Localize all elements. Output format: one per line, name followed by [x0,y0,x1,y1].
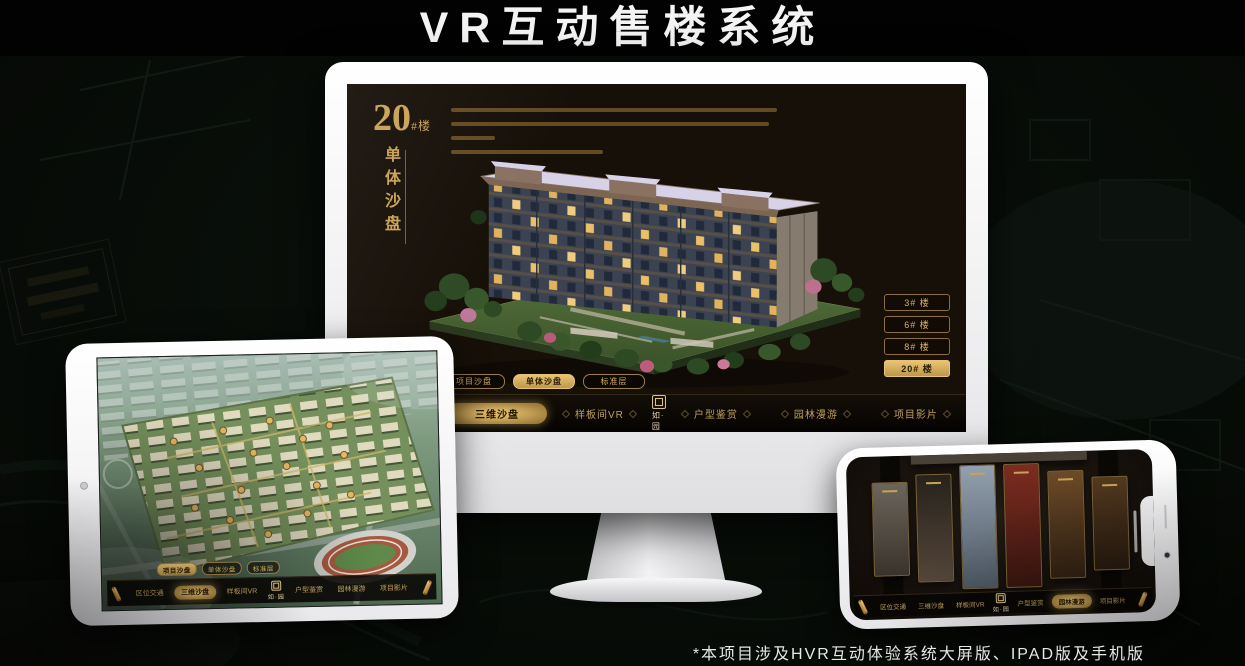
brand-logo[interactable]: 如·园 [992,592,1010,612]
page-title: VR互动售楼系统 [0,0,1245,56]
sub-tab[interactable]: 单体沙盘 [202,561,242,575]
monitor-stand-base [550,578,762,602]
gallery-panel[interactable] [872,482,911,577]
nav-item[interactable]: 户型鉴赏 [291,582,327,597]
vr-scene-gallery [871,460,1130,593]
brand-seal-icon [652,395,666,409]
nav-item[interactable]: 区位交通 [876,598,910,613]
building-number-suffix: #楼 [411,119,431,133]
scroll-ornament-icon[interactable] [107,584,125,602]
gallery-panel[interactable] [1091,476,1130,571]
phone-notch [1140,495,1155,565]
floor-selector: 3# 楼 6# 楼 8# 楼 20# 楼 [884,294,950,377]
nav-item[interactable]: 户型鉴赏 [1013,594,1047,609]
phone-speaker-icon [1164,505,1167,529]
nav-item[interactable]: 区位交通 [132,586,168,601]
nav-item[interactable]: 园林漫游 [333,581,369,596]
gallery-panel[interactable] [1047,470,1086,579]
nav-item[interactable]: 项目影片 [1096,592,1130,607]
sub-tab[interactable]: 标准层 [247,561,280,575]
nav-item[interactable]: 项目影片 [866,403,966,424]
sandbox-sub-tabs: 项目沙盘 单体沙盘 标准层 [443,374,645,389]
nav-item[interactable]: 样板间VR [222,584,261,599]
nav-item[interactable]: 园林漫游 [766,403,866,424]
home-indicator[interactable] [1133,510,1137,552]
compass-watermark-icon [103,459,134,490]
brand-seal-icon [996,593,1006,603]
gallery-panel[interactable] [959,464,998,589]
floor-button[interactable]: 8# 楼 [884,338,950,355]
floor-button[interactable]: 6# 楼 [884,316,950,333]
brand-logo[interactable]: 如·园 [267,580,284,600]
phone-device: 区位交通 三维沙盘 样板间VR 如·园 户型鉴赏 园林漫游 [836,439,1181,629]
nav-item[interactable]: 户型鉴赏 [666,403,766,424]
brand-logo[interactable]: 如·园 [652,395,666,432]
background-plaque [0,239,126,344]
tablet-camera-icon [80,482,88,490]
tablet-screen: 项目沙盘 单体沙盘 标准层 区位交通 [96,350,442,611]
phone-camera-icon [1164,552,1171,559]
nav-item[interactable]: 样板间VR [952,596,989,611]
floor-button[interactable]: 3# 楼 [884,294,950,311]
scroll-ornament-icon[interactable] [854,597,872,615]
hero-divider [405,150,406,244]
scroll-ornament-icon[interactable] [418,578,436,596]
nav-item[interactable]: 三维沙盘 [914,597,948,612]
sandbox-building-render[interactable] [417,156,877,401]
tablet-sub-tabs: 项目沙盘 单体沙盘 标准层 [157,561,280,577]
gallery-panel[interactable] [1003,463,1042,588]
nav-item[interactable]: 样板间VR [547,403,652,424]
building-number-heading: 20#楼 [373,96,431,140]
poster-stage: VR互动售楼系统 20#楼 单体沙盘 [0,0,1245,666]
sub-tab[interactable]: 单体沙盘 [513,374,575,389]
tablet-device: 项目沙盘 单体沙盘 标准层 区位交通 [65,336,459,626]
hero-subtitle: 单体沙盘 [378,146,402,238]
sub-tab[interactable]: 标准层 [583,374,645,389]
phone-screen: 区位交通 三维沙盘 样板间VR 如·园 户型鉴赏 园林漫游 [846,449,1156,620]
nav-item[interactable]: 三维沙盘 [447,403,547,424]
nav-item[interactable]: 项目影片 [376,580,412,595]
brand-seal-icon [271,580,281,590]
nav-item[interactable]: 园林漫游 [1051,593,1091,608]
gallery-panel[interactable] [915,474,954,583]
floor-button[interactable]: 20# 楼 [884,360,950,377]
footnote-text: *本项目涉及HVR互动体验系统大屏版、IPAD版及手机版 [693,640,1145,664]
scroll-ornament-icon[interactable] [1134,590,1152,608]
nav-item[interactable]: 三维沙盘 [174,584,216,599]
monitor-stand [586,512,726,584]
sub-tab[interactable]: 项目沙盘 [157,562,197,576]
